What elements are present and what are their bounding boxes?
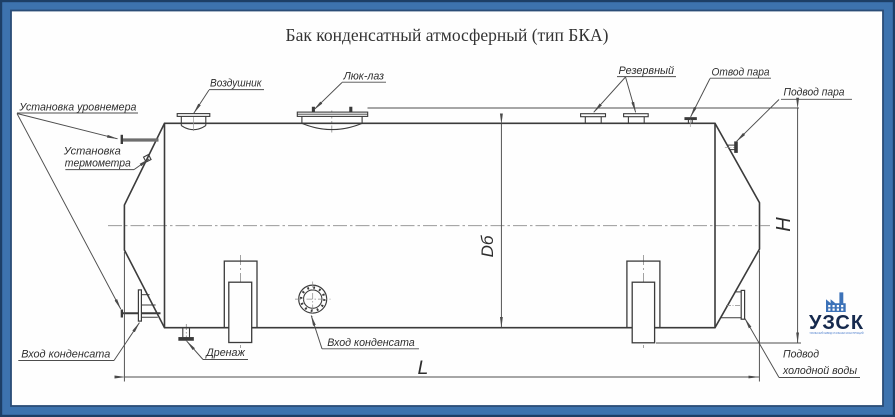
svg-text:Бак конденсатный атмосферный (: Бак конденсатный атмосферный (тип БКА) xyxy=(286,25,609,45)
svg-text:холодной воды: холодной воды xyxy=(782,365,858,377)
svg-text:Установка: Установка xyxy=(63,146,121,158)
svg-text:Дренаж: Дренаж xyxy=(204,347,246,359)
svg-text:Dб: Dб xyxy=(478,234,497,257)
svg-text:Отвод пара: Отвод пара xyxy=(712,66,770,78)
svg-text:Подвод: Подвод xyxy=(783,348,819,360)
svg-text:Подвод пара: Подвод пара xyxy=(784,87,845,99)
svg-text:УРАЛЬСКИЙ ЗАВОД СТАЛЬНЫХ КОНСТ: УРАЛЬСКИЙ ЗАВОД СТАЛЬНЫХ КОНСТРУКЦИЙ xyxy=(810,331,864,335)
svg-text:термометра: термометра xyxy=(65,158,131,170)
svg-text:Вход конденсата: Вход конденсата xyxy=(21,348,110,360)
svg-text:Вход конденсата: Вход конденсата xyxy=(327,337,415,349)
svg-text:Резервный: Резервный xyxy=(619,65,675,77)
svg-text:Воздушник: Воздушник xyxy=(210,78,262,90)
svg-text:Люк-лаз: Люк-лаз xyxy=(343,70,384,82)
svg-text:L: L xyxy=(418,357,429,379)
svg-text:H: H xyxy=(773,217,795,232)
svg-text:Установка уровнемера: Установка уровнемера xyxy=(18,101,136,113)
